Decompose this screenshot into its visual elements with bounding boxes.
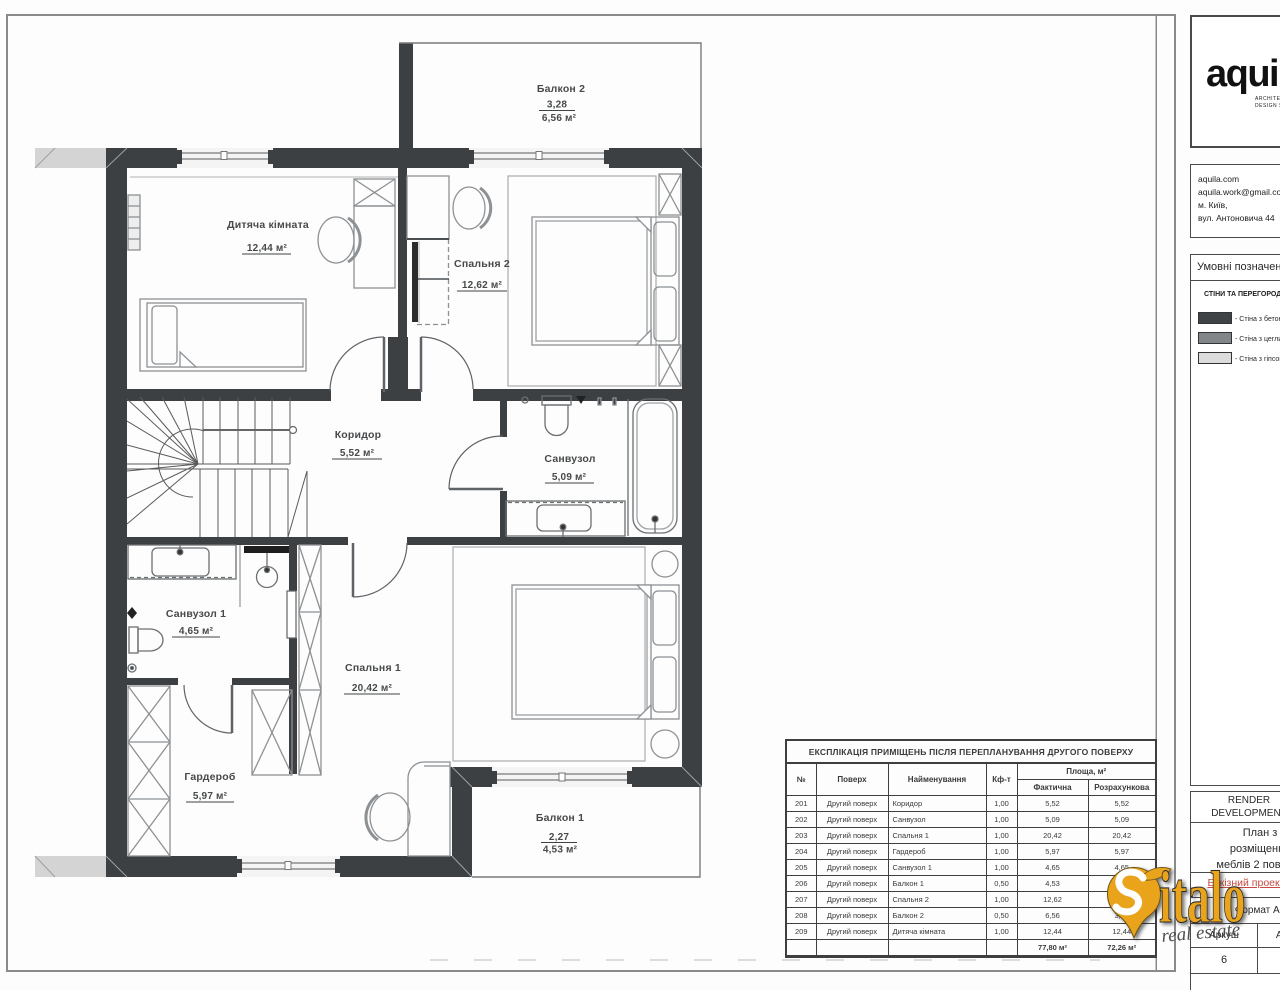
svg-text:Санвузол 1: Санвузол 1 xyxy=(166,608,226,620)
svg-text:3,28: 3,28 xyxy=(547,100,568,111)
svg-text:4,65 м²: 4,65 м² xyxy=(179,626,214,637)
svg-text:Спальня 2: Спальня 2 xyxy=(454,258,510,270)
svg-text:5,09 м²: 5,09 м² xyxy=(552,472,587,483)
svg-text:Санвузол: Санвузол xyxy=(544,453,595,465)
svg-text:Спальня 1: Спальня 1 xyxy=(345,662,401,674)
svg-text:Балкон 2: Балкон 2 xyxy=(537,83,585,95)
svg-text:Коридор: Коридор xyxy=(335,429,382,441)
svg-text:12,44 м²: 12,44 м² xyxy=(247,243,288,254)
svg-text:Дитяча кімната: Дитяча кімната xyxy=(227,219,309,231)
svg-text:6,56 м²: 6,56 м² xyxy=(542,113,577,124)
svg-text:12,62 м²: 12,62 м² xyxy=(462,280,503,291)
svg-text:20,42 м²: 20,42 м² xyxy=(352,683,393,694)
svg-text:5,97 м²: 5,97 м² xyxy=(193,791,228,802)
svg-text:Гардероб: Гардероб xyxy=(184,771,236,783)
svg-text:4,53 м²: 4,53 м² xyxy=(543,845,578,856)
svg-text:Балкон 1: Балкон 1 xyxy=(536,812,584,824)
svg-text:5,52 м²: 5,52 м² xyxy=(340,448,375,459)
svg-text:2,27: 2,27 xyxy=(549,832,570,843)
